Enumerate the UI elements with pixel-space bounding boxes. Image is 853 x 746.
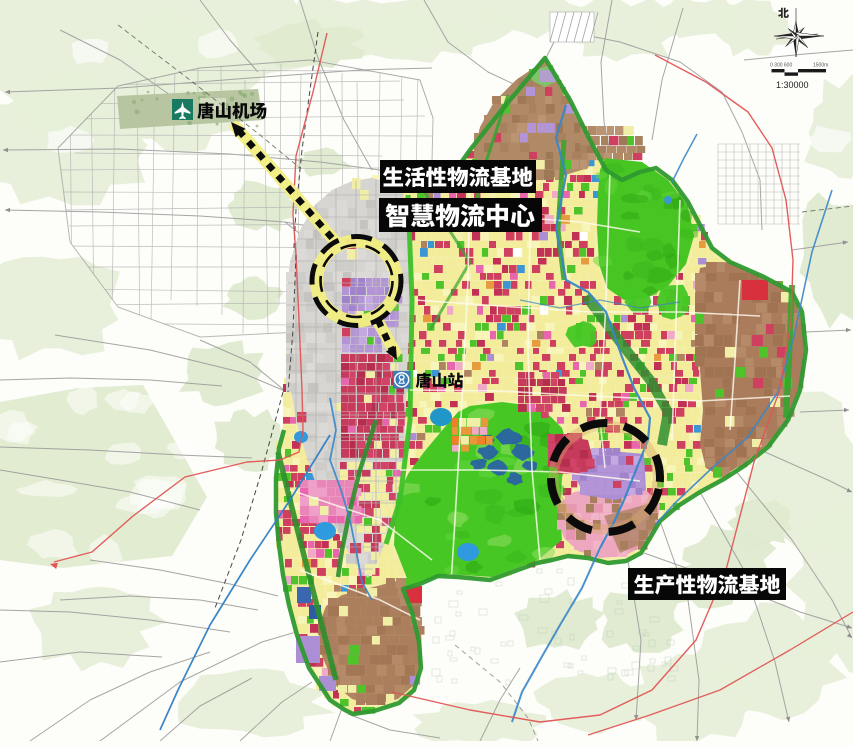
svg-text:1:30000: 1:30000 [776, 80, 809, 90]
svg-text:0 300 600: 0 300 600 [770, 63, 792, 69]
svg-text:1500m: 1500m [813, 63, 828, 69]
